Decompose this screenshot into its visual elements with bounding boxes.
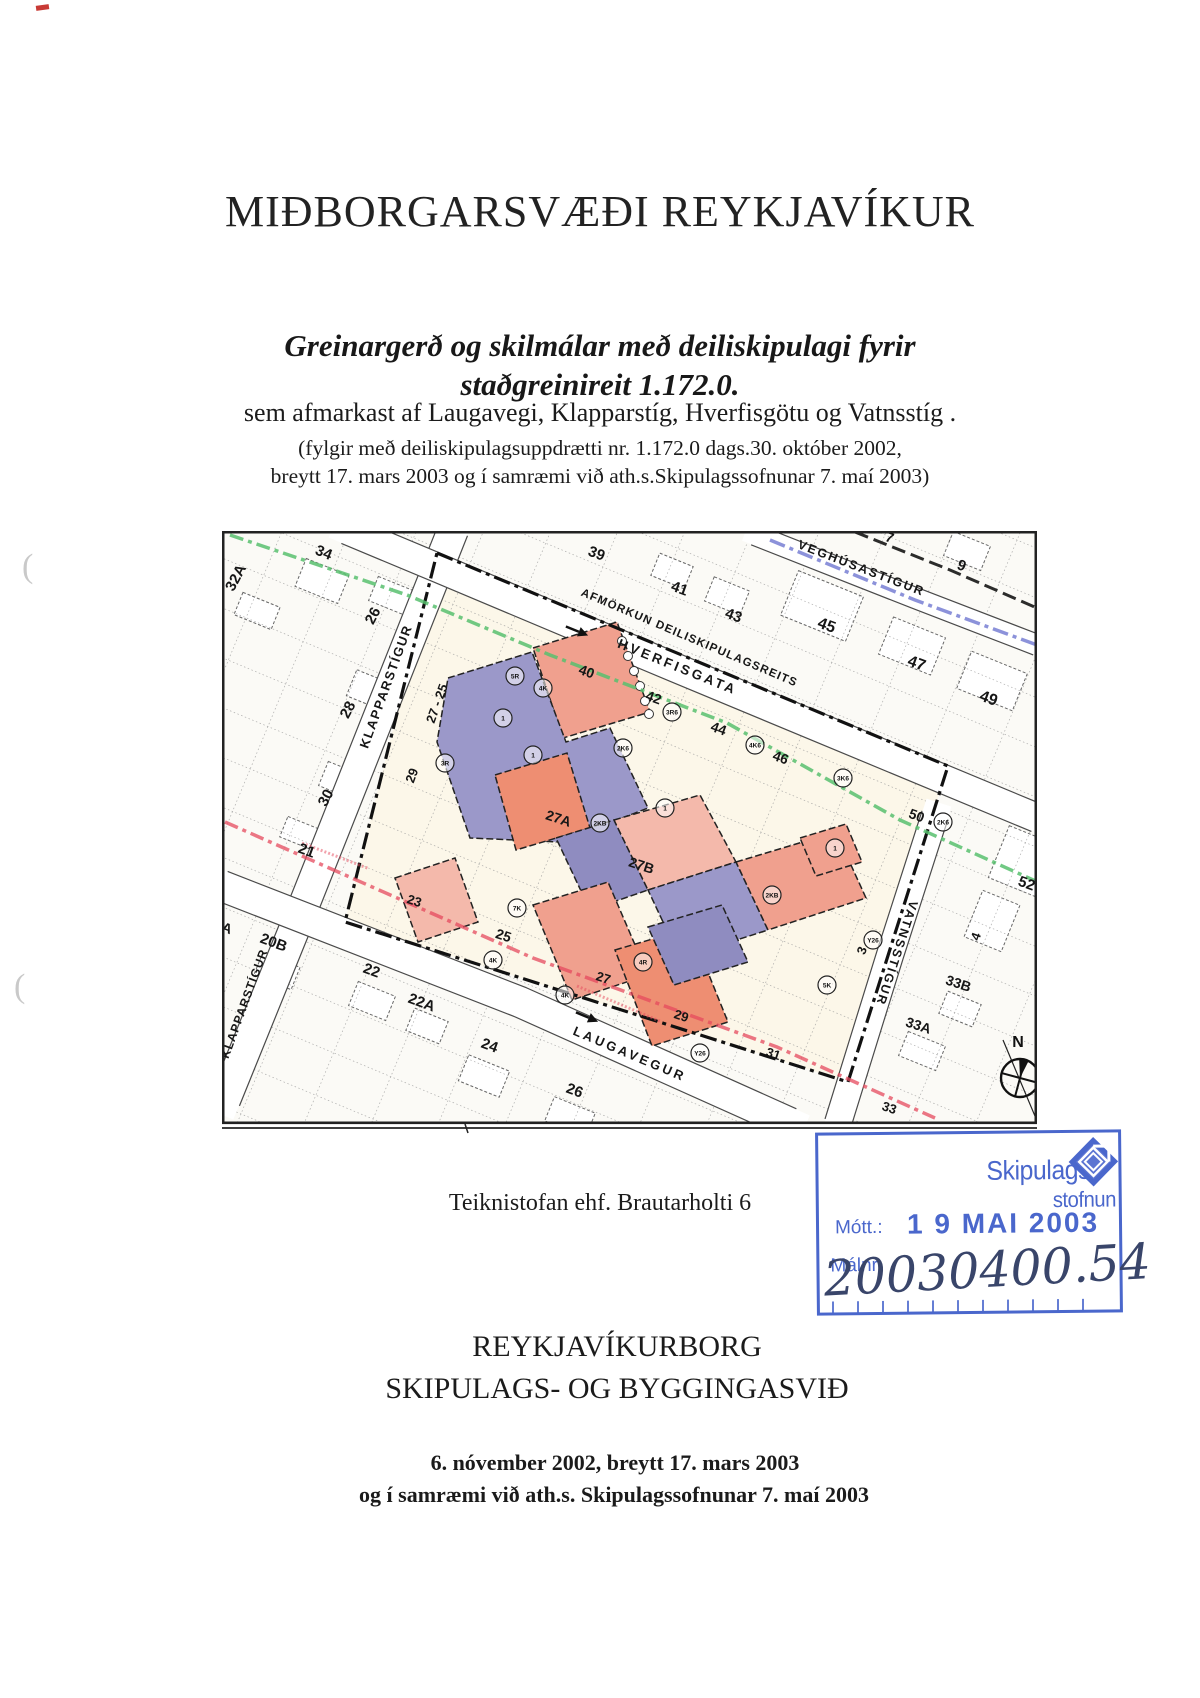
stamp-received-date: 1 9 MAI 2003 <box>907 1207 1099 1241</box>
svg-text:2K6: 2K6 <box>617 746 629 753</box>
circled-code-4K: 4K <box>556 986 574 1004</box>
svg-text:7K: 7K <box>513 906 522 913</box>
circled-code-4K6: 4K6 <box>746 736 764 754</box>
org-department: SKIPULAGS- OG BYGGINGASVIÐ <box>17 1372 1200 1406</box>
svg-text:4K: 4K <box>561 993 570 1000</box>
svg-text:4K: 4K <box>539 686 548 693</box>
circled-code-5K: 5K <box>818 976 836 994</box>
circled-code-2K6: 2K6 <box>614 739 632 757</box>
svg-text:4K6: 4K6 <box>749 743 761 750</box>
stamp-case-number-handwritten: 20030400.54 <box>822 1233 1152 1308</box>
circled-code-3R6: 3R6 <box>663 703 681 721</box>
map-dot <box>630 667 639 676</box>
svg-text:1: 1 <box>663 806 667 813</box>
svg-text:Y26: Y26 <box>694 1051 706 1058</box>
svg-text:5R: 5R <box>511 674 520 681</box>
circled-code-4K: 4K <box>534 679 552 697</box>
svg-text:5K: 5K <box>823 983 832 990</box>
circled-code-7K: 7K <box>508 899 526 917</box>
svg-text:1: 1 <box>501 716 505 723</box>
svg-text:Y26: Y26 <box>867 938 879 945</box>
org-name: REYKJAVÍKURBORG <box>17 1330 1200 1364</box>
north-label: N <box>1012 1034 1024 1051</box>
svg-text:2KB: 2KB <box>593 821 606 828</box>
site-plan-map-svg: N5R4K113R2K63R64K63K612KB2KB17K4K4R4K5KY… <box>222 531 1037 1135</box>
svg-text:1: 1 <box>531 753 535 760</box>
note-line1: (fylgir með deiliskipulagsuppdrætti nr. … <box>0 436 1200 461</box>
circled-code-4K: 4K <box>484 951 502 969</box>
scan-paren-artifact: ( <box>22 548 33 586</box>
skipulagsstofnun-received-stamp: Skipulags stofnun Mótt.: 1 9 MAI 2003 Má… <box>815 1129 1123 1315</box>
map-dot <box>645 710 654 719</box>
svg-text:3R6: 3R6 <box>666 710 678 717</box>
skipulagsstofnun-diamond-logo-icon <box>1068 1136 1119 1187</box>
scope-line: sem afmarkast af Laugavegi, Klapparstíg,… <box>0 398 1200 428</box>
scan-paren-artifact: ( <box>14 968 25 1006</box>
note-line2: breytt 17. mars 2003 og í samræmi við at… <box>0 464 1200 489</box>
circled-code-5R: 5R <box>506 667 524 685</box>
svg-text:4K: 4K <box>489 958 498 965</box>
svg-text:2KB: 2KB <box>765 893 778 900</box>
svg-text:3R: 3R <box>441 761 450 768</box>
circled-code-Y26: Y26 <box>864 931 882 949</box>
document-page: ( ( MIÐBORGARSVÆÐI REYKJAVÍKUR Greinarge… <box>0 0 1200 1698</box>
circled-code-2K6: 2K6 <box>934 813 952 831</box>
circled-code-1: 1 <box>656 799 674 817</box>
footer-date-line2: og í samræmi við ath.s. Skipulagssofnuna… <box>14 1482 1200 1508</box>
document-subtitle: Greinargerð og skilmálar með deiliskipul… <box>0 326 1200 404</box>
circled-code-2KB: 2KB <box>763 886 781 904</box>
svg-text:3K6: 3K6 <box>837 776 849 783</box>
circled-code-3R: 3R <box>436 754 454 772</box>
scan-red-mark <box>36 4 50 11</box>
svg-text:4R: 4R <box>639 960 648 967</box>
svg-text:1: 1 <box>833 846 837 853</box>
map-content: N5R4K113R2K63R64K63K612KB2KB17K4K4R4K5KY… <box>222 531 1037 1135</box>
document-title: MIÐBORGARSVÆÐI REYKJAVÍKUR <box>0 186 1200 237</box>
stamp-received-label: Mótt.: <box>835 1217 883 1239</box>
circled-code-3K6: 3K6 <box>834 769 852 787</box>
circled-code-1: 1 <box>494 709 512 727</box>
circled-code-Y26: Y26 <box>691 1044 709 1062</box>
site-plan-map: N5R4K113R2K63R64K63K612KB2KB17K4K4R4K5KY… <box>222 531 1037 1135</box>
footer-date-line1: 6. nóvember 2002, breytt 17. mars 2003 <box>15 1450 1200 1476</box>
subtitle-line1: Greinargerð og skilmálar með deiliskipul… <box>0 326 1200 365</box>
circled-code-2KB: 2KB <box>591 814 609 832</box>
circled-code-1: 1 <box>826 839 844 857</box>
svg-text:2K6: 2K6 <box>937 820 949 827</box>
circled-code-4R: 4R <box>634 953 652 971</box>
circled-code-1: 1 <box>524 746 542 764</box>
